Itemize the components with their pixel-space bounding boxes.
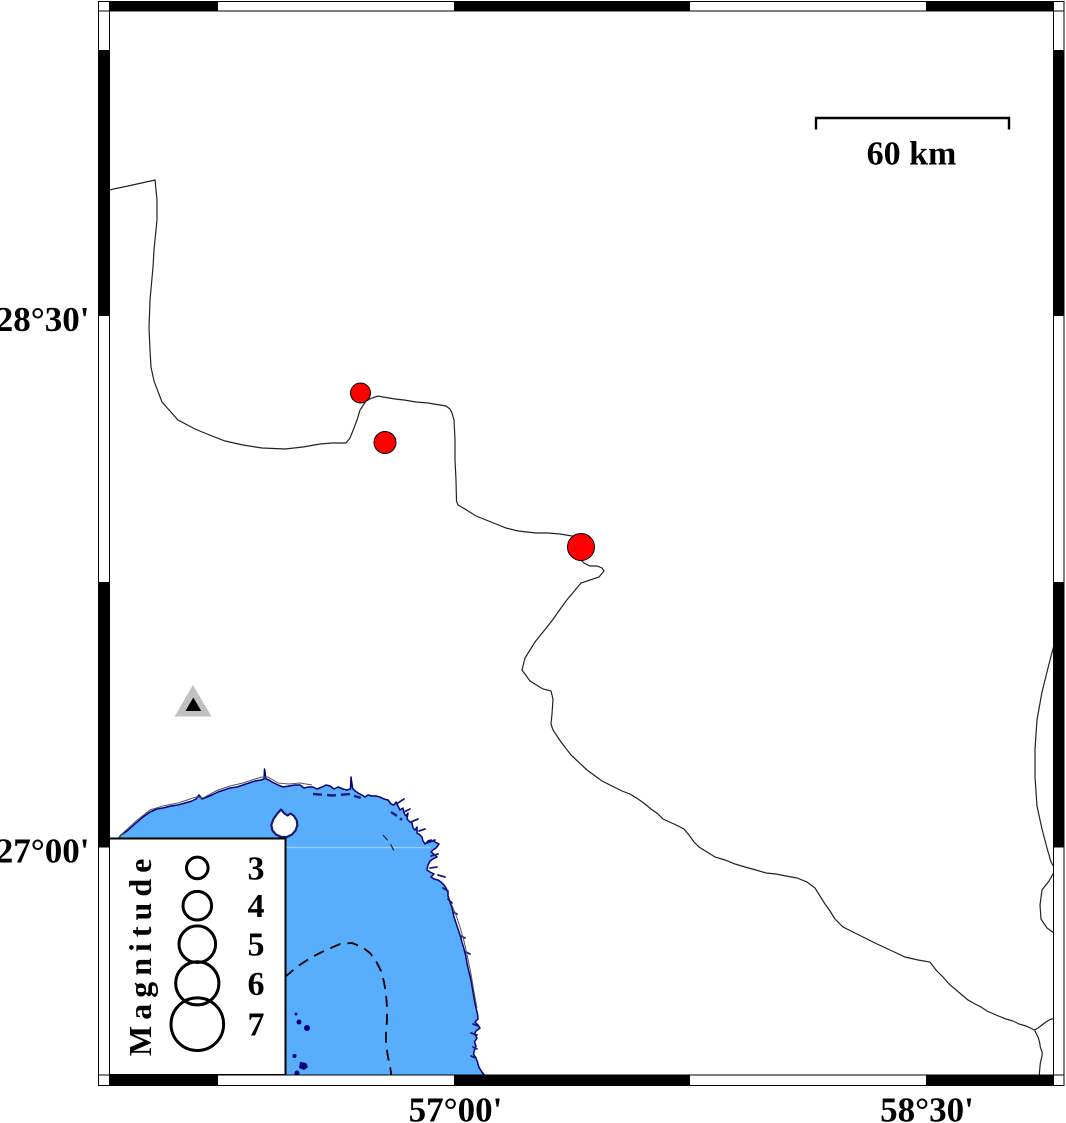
svg-text:58°30': 58°30' <box>880 1091 974 1123</box>
svg-text:28°30': 28°30' <box>0 300 90 339</box>
svg-text:4: 4 <box>248 888 265 925</box>
svg-text:60 km: 60 km <box>867 136 957 173</box>
svg-text:Magnitude: Magnitude <box>122 853 158 1056</box>
svg-text:3: 3 <box>248 850 265 887</box>
svg-text:7: 7 <box>248 1007 265 1044</box>
svg-text:6: 6 <box>248 966 265 1003</box>
svg-text:27°00': 27°00' <box>0 832 90 871</box>
svg-text:57°00': 57°00' <box>409 1091 503 1123</box>
svg-text:5: 5 <box>248 927 265 964</box>
